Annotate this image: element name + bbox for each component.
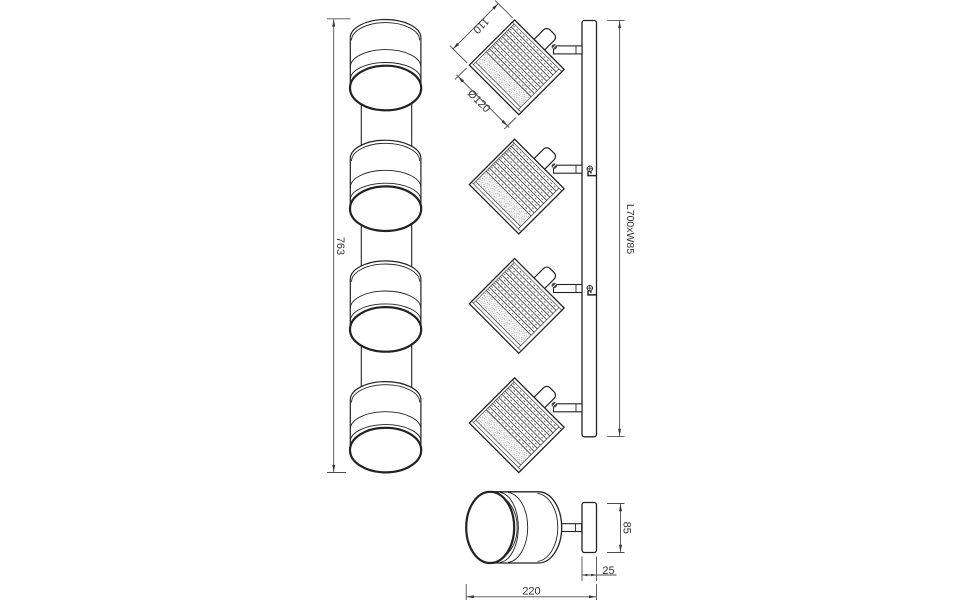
svg-text:Ø120: Ø120 bbox=[465, 88, 493, 116]
svg-text:763: 763 bbox=[334, 237, 346, 255]
svg-text:L700xW85: L700xW85 bbox=[624, 204, 636, 254]
svg-text:110: 110 bbox=[470, 15, 491, 36]
svg-text:25: 25 bbox=[602, 565, 614, 577]
svg-text:220: 220 bbox=[522, 586, 540, 598]
svg-text:85: 85 bbox=[621, 522, 633, 534]
